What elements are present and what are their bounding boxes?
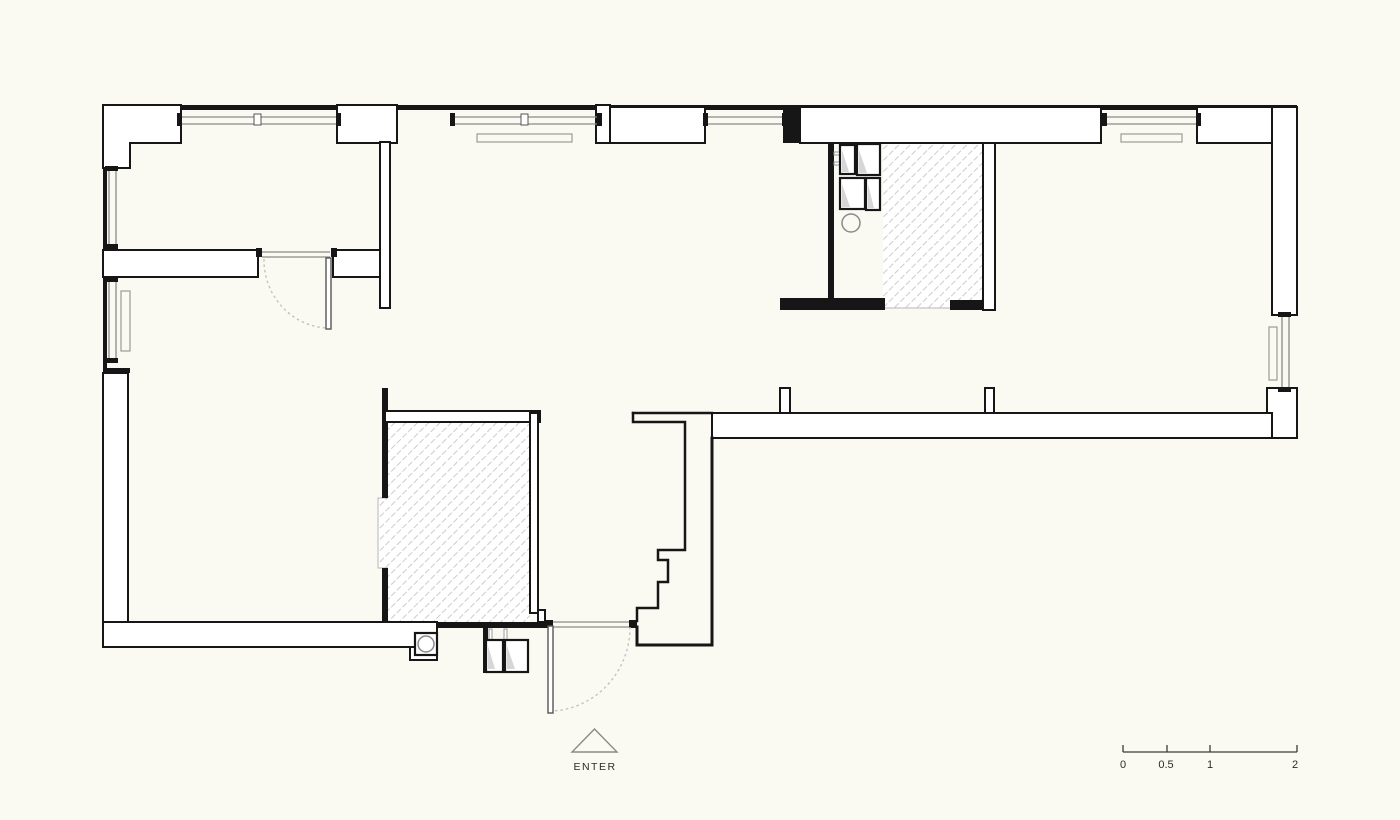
enter-label: ENTER	[573, 761, 616, 773]
wall-segment	[828, 143, 834, 301]
interior-door	[262, 252, 331, 329]
floor-plan-page: ENTER 0 0.5 1 2	[0, 0, 1400, 820]
entry-door	[548, 622, 630, 713]
wall-stub	[780, 388, 790, 413]
entry-steps-outline	[633, 413, 685, 621]
wall-stub	[985, 388, 994, 413]
closet-hatched-floor	[378, 422, 530, 622]
closet-right-wall	[530, 413, 538, 613]
window-top-2	[450, 113, 602, 126]
radiator	[477, 134, 572, 142]
appliance-fixture	[840, 178, 865, 209]
radiator	[121, 291, 130, 351]
closet-top-wall	[385, 411, 540, 422]
boiler-fixture	[415, 633, 437, 655]
wall-segment	[1197, 107, 1272, 143]
door-jamb	[331, 248, 337, 257]
washer-fixture	[505, 640, 528, 672]
window-top-4	[1102, 113, 1201, 126]
wall-segment	[382, 388, 388, 498]
walls	[103, 105, 1297, 673]
appliance-fixture	[866, 178, 880, 210]
wall-segment	[610, 107, 705, 143]
window-right	[1278, 312, 1291, 392]
washer-fixture	[486, 640, 503, 672]
wall-segment	[538, 610, 545, 622]
interior-wall	[103, 250, 258, 277]
window-mullion	[521, 114, 528, 125]
wall-segment	[437, 622, 550, 628]
door-swing-arc	[264, 259, 328, 328]
door-panel	[326, 258, 331, 329]
enter-triangle-icon	[572, 729, 617, 752]
door-jamb	[629, 620, 637, 628]
scale-tick-label: 1	[1207, 759, 1213, 771]
radiator	[1121, 134, 1182, 142]
wall-segment	[780, 298, 885, 310]
bottom-exterior-wall	[103, 622, 437, 647]
wall-segment	[382, 568, 388, 622]
round-fixture	[842, 214, 860, 232]
floor-plan-svg: ENTER 0 0.5 1 2	[0, 0, 1400, 820]
wall-segment	[800, 107, 1101, 143]
scale-tick-label: 0	[1120, 759, 1126, 771]
door-panel	[548, 626, 553, 713]
enter-marker: ENTER	[572, 729, 617, 773]
door-jamb	[256, 248, 262, 257]
scale-bar: 0 0.5 1 2	[1120, 745, 1298, 771]
bathroom-right-wall	[983, 143, 995, 310]
window-top-1	[177, 113, 341, 126]
left-exterior-wall	[103, 373, 128, 622]
scale-tick-label: 2	[1292, 759, 1298, 771]
corner-pier	[103, 105, 181, 168]
bathroom-hatched-floor	[883, 143, 983, 308]
interior-wall	[380, 142, 390, 308]
right-exterior-wall	[1272, 107, 1297, 315]
window-top-3	[703, 113, 787, 126]
pipe-connector	[489, 629, 492, 640]
radiator	[1269, 327, 1277, 380]
stairwell-outline	[637, 438, 712, 645]
scale-tick-label: 0.5	[1158, 759, 1173, 771]
appliance-fixture	[840, 145, 855, 174]
appliance-fixture	[857, 144, 880, 175]
window-mullion	[254, 114, 261, 125]
wall-segment	[337, 105, 397, 143]
door-swing-arc	[553, 627, 630, 711]
south-wall-right-wing	[712, 413, 1272, 438]
pipe-connector	[504, 629, 507, 640]
